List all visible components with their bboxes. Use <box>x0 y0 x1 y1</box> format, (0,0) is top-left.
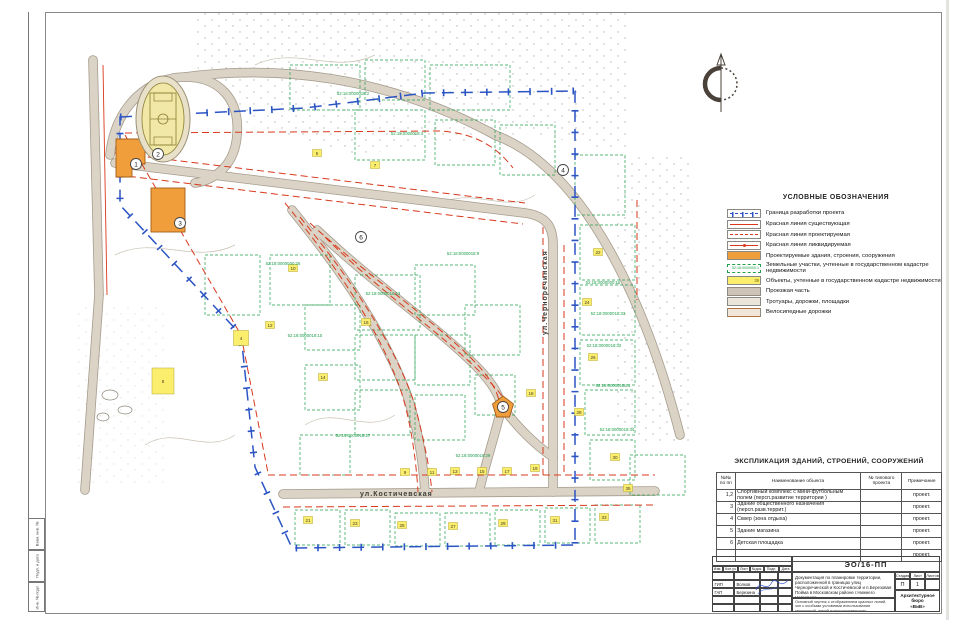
signer-row <box>712 572 792 580</box>
cadastre-object-number: 21 <box>305 518 311 523</box>
col-number: №№ по пп <box>717 473 736 490</box>
legend-item-label: Красная линия проектируемая <box>766 232 850 238</box>
site-plan-map: 9111315171921232527293133222426283035571… <box>55 5 690 613</box>
signer-name <box>734 604 760 612</box>
symbol-sample-text: 52:18:0000000:1 <box>732 266 759 270</box>
cadastre-object-number: 15 <box>479 469 485 474</box>
explication-table: №№ по пп Наименование объекта № типового… <box>716 472 942 562</box>
cadastral-parcel <box>415 395 465 440</box>
redline-removed-symbol <box>727 241 761 250</box>
cadastral-number-label: 52:18:0000018:29 <box>456 453 491 458</box>
col-name: Наименование объекта <box>735 473 861 490</box>
cadastre-object-marker: 17 <box>503 468 512 475</box>
cadastre-object-marker: 23 <box>351 520 360 527</box>
signer-name: Березина <box>734 588 760 596</box>
table-cell: 3 <box>717 502 736 514</box>
bikeway-symbol <box>727 308 761 317</box>
cadastral-parcel <box>545 508 590 543</box>
legend-title: УСЛОВНЫЕ ОБОЗНАЧЕНИЯ <box>727 194 945 201</box>
company-line2: «ВиВ» <box>910 604 925 609</box>
cadastre-object-number: 8 <box>162 379 165 384</box>
signer-row: ГИПВолков <box>712 580 792 588</box>
cadastre-object-number: 13 <box>452 469 458 474</box>
cadastre-object-marker: 15 <box>478 468 487 475</box>
cadastre-object-number: 27 <box>450 524 456 529</box>
table-cell: 1,2 <box>717 490 736 502</box>
stage-header-cell: Лист <box>910 572 925 579</box>
stage-headers: СтадияЛистЛистов <box>895 572 940 579</box>
cadastral-number-label: 52:18:0000018:4 <box>391 131 424 136</box>
revision-blank-row <box>712 556 792 566</box>
sidewalk-symbol <box>727 297 761 306</box>
signer-signature-cell <box>760 588 778 596</box>
cadastre-object-number: 12 <box>267 323 273 328</box>
cadastral-parcel <box>595 505 640 543</box>
cadastre-object-marker: 35 <box>624 485 633 492</box>
table-row: 5Здание магазинапроект. <box>717 526 942 538</box>
table-cell <box>861 490 902 502</box>
signer-name <box>734 596 760 604</box>
cadastre-object-number: 14 <box>320 375 326 380</box>
table-cell <box>861 502 902 514</box>
cadastre-object-number: 4 <box>240 336 243 341</box>
legend-item: Проезжая часть <box>727 287 945 296</box>
cadastral-parcel <box>295 510 340 545</box>
frame-strip-label: Инв. № подл. <box>34 585 39 610</box>
cadastral-number-label: 52:18:0000018:21 <box>596 383 631 388</box>
table-cell <box>861 538 902 550</box>
legend-item: 39Объекты, учтенные в государственном ка… <box>727 276 945 285</box>
signer-name: Волков <box>734 580 760 588</box>
legend-item: Граница разработки проекта <box>727 209 945 218</box>
table-cell: проект. <box>902 526 942 538</box>
object-number-marker: 2 <box>153 149 164 160</box>
company-name: Архитектурное бюро «ВиВ» <box>895 590 940 612</box>
cadastre-object-number: 33 <box>601 515 607 520</box>
cadastre-object-marker: 18 <box>527 390 536 397</box>
table-cell: проект. <box>902 538 942 550</box>
frame-strip-box: Инв. № подл. <box>28 582 45 612</box>
cadastre-object-marker: 14 <box>319 374 328 381</box>
cadastre-objects-layer: 9111315171921232527293133222426283035571… <box>152 150 633 530</box>
cadastre-object-number: 9 <box>404 470 407 475</box>
cadastre-object-number: 7 <box>374 163 377 168</box>
sport-complex-building <box>116 139 145 177</box>
cadastre-object-number: 16 <box>363 320 369 325</box>
object-number: 2 <box>156 151 160 158</box>
page-edge-shadow <box>946 0 949 620</box>
mini-football-field <box>136 76 190 162</box>
object-number: 1 <box>134 161 138 168</box>
cadastral-number-label: 52:18:0000018:2 <box>337 91 370 96</box>
cadastre-object-marker: 21 <box>304 517 313 524</box>
table-row: 6Детская площадкапроект. <box>717 538 942 550</box>
signer-date-cell <box>778 604 792 612</box>
project-description: Документация по планировке территории, р… <box>792 572 895 598</box>
cadastre-object-number: 5 <box>316 151 319 156</box>
cadastre-object-marker: 12 <box>266 322 275 329</box>
stage-value-cell <box>925 579 940 590</box>
table-cell: Спортивный комплекс с мини-футбольным по… <box>735 490 861 502</box>
col-type-project: № типового проекта <box>861 473 902 490</box>
cadastre-object-number: 19 <box>532 466 538 471</box>
signer-role: ГИП <box>712 580 734 588</box>
drawing-sheet: Взам. инв. №Подп. и датаИнв. № подл. <box>0 0 957 620</box>
title-block: Изм.Кол.учЛист№док.Подп.Дата ГИПВолковГА… <box>712 556 940 612</box>
signer-date-cell <box>778 572 792 580</box>
legend-item: Красная линия существующая <box>727 220 945 229</box>
cadastre-object-marker: 22 <box>594 249 603 256</box>
table-row: 1,2Спортивный комплекс с мини-футбольным… <box>717 490 942 502</box>
cadastral-number-label: 52:18:0000000:16 <box>586 280 621 285</box>
cadastral-parcel <box>415 335 470 385</box>
legend-item-label: Земельные участки, учтенные в государств… <box>766 262 945 275</box>
cadastre-object-marker: 27 <box>449 523 458 530</box>
cadastre-object-marker: 5 <box>313 150 322 157</box>
roadway-symbol <box>727 287 761 296</box>
cadastral-parcel <box>415 265 475 315</box>
legend-item-label: Проектируемые здания, строения, сооружен… <box>766 253 895 259</box>
frame-strip-box: Подп. и дата <box>28 550 45 582</box>
signer-signature-cell <box>760 572 778 580</box>
object-number-marker: 4 <box>558 165 569 176</box>
stage-value-cell: П <box>895 579 910 590</box>
cadastral-numbers-layer: 52:18:0000000:1652:18:0000018:3352:18:00… <box>266 91 635 458</box>
cadastre-object-number: 18 <box>528 391 534 396</box>
signer-name <box>734 572 760 580</box>
table-cell: Здание общественного назначения (персп.р… <box>735 502 861 514</box>
frame-strip-box: Взам. инв. № <box>28 518 45 550</box>
cadastral-parcel <box>305 305 360 350</box>
cadastral-number-label: 52:18:0000018:9 <box>447 251 480 256</box>
legend-item: Проектируемые здания, строения, сооружен… <box>727 251 945 260</box>
signer-row <box>712 596 792 604</box>
table-cell: проект. <box>902 514 942 526</box>
signer-signature-cell <box>760 604 778 612</box>
cadastre-object-number: 29 <box>500 521 506 526</box>
symbol-sample-text: 39 <box>754 278 759 283</box>
cadastre-object-marker: 9 <box>401 469 410 476</box>
cadastral-number-label: 52:18:0000018:33 <box>591 311 626 316</box>
cadastre-object-number: 22 <box>595 250 601 255</box>
project-code: ЭО/16-ПП <box>792 556 940 572</box>
cadastral-parcel <box>345 510 390 545</box>
cadastre-object-marker: 7 <box>371 162 380 169</box>
table-cell: 5 <box>717 526 736 538</box>
legend-item-label: Красная линия существующая <box>766 221 850 227</box>
table-cell <box>861 526 902 538</box>
legend-item-label: Тротуары, дорожки, площадки <box>766 299 849 305</box>
stage-header-cell: Стадия <box>895 572 910 579</box>
table-cell: 6 <box>717 538 736 550</box>
table-cell: проект. <box>902 502 942 514</box>
object-number: 6 <box>359 234 363 241</box>
cadastre-object-marker: 11 <box>428 469 437 476</box>
cadastre-object-number: 26 <box>590 355 596 360</box>
cadastre-object-number: 35 <box>625 486 631 491</box>
cadastre-object-number: 25 <box>399 523 405 528</box>
cadastral-parcel <box>465 305 520 355</box>
cadastre-object-marker: 24 <box>583 299 592 306</box>
company-line1: Архитектурное бюро <box>896 593 939 604</box>
cadastral-number-label: 52:18:0000018:17 <box>336 433 371 438</box>
cadastral-number-label: 52:18:0000018:15 <box>288 333 323 338</box>
cadastral-number-label: 52:18:0000018:13 <box>366 291 401 296</box>
frame-strip-label: Взам. инв. № <box>34 522 39 547</box>
object-number-marker: 6 <box>356 232 367 243</box>
stage-header-cell: Листов <box>925 572 940 579</box>
redline-planned-symbol <box>727 230 761 239</box>
cadastral-number-label: 52:18:0000000:26 <box>266 261 301 266</box>
cadastral-parcel <box>300 435 350 475</box>
stage-values: П1 <box>895 579 940 590</box>
signer-signature-cell <box>760 596 778 604</box>
cadastral-parcel <box>305 365 360 410</box>
col-note: Примечание <box>902 473 942 490</box>
legend-item: Тротуары, дорожки, площадки <box>727 297 945 306</box>
cadastre-object-number: 11 <box>430 470 435 475</box>
cadastre-object-marker: 28 <box>575 409 584 416</box>
building-planned-symbol <box>727 251 761 260</box>
signer-role <box>712 572 734 580</box>
legend-item-label: Граница разработки проекта <box>766 210 844 216</box>
table-cell: 4 <box>717 514 736 526</box>
cadastre-object-number: 17 <box>504 469 510 474</box>
cadastre-object-number: 28 <box>576 410 582 415</box>
cadastre-object-number: 24 <box>584 300 590 305</box>
legend-item: Красная линия проектируемая <box>727 230 945 239</box>
signer-role <box>712 604 734 612</box>
cadastre-object-marker: 26 <box>589 354 598 361</box>
legend-item-label: Красная линия ликвидируемая <box>766 242 851 248</box>
signer-date-cell <box>778 588 792 596</box>
legend: УСЛОВНЫЕ ОБОЗНАЧЕНИЯ Граница разработки … <box>727 194 945 319</box>
table-cell: Здание магазина <box>735 526 861 538</box>
cadastre-object-marker: 4 <box>234 331 249 346</box>
boundary-symbol <box>727 209 761 218</box>
table-cell: проект. <box>902 490 942 502</box>
redline-existing-symbol <box>727 220 761 229</box>
signer-date-cell <box>778 596 792 604</box>
legend-item-label: Велосипедные дорожки <box>766 309 831 315</box>
explication-block: ЭКСПЛИКАЦИЯ ЗДАНИЙ, СТРОЕНИЙ, СООРУЖЕНИЙ… <box>716 458 942 562</box>
legend-item: Красная линия ликвидируемая <box>727 241 945 250</box>
object-cadastre-symbol: 39 <box>727 276 761 285</box>
explication-title: ЭКСПЛИКАЦИЯ ЗДАНИЙ, СТРОЕНИЙ, СООРУЖЕНИЙ <box>716 458 942 465</box>
street-name-label: ул.Черноречинская <box>542 250 549 335</box>
legend-item: 52:18:0000000:1Земельные участки, учтенн… <box>727 262 945 275</box>
cadastre-object-marker: 29 <box>499 520 508 527</box>
cadastral-number-label: 52:18:0000018:44 <box>600 427 635 432</box>
frame-strip-label: Подп. и дата <box>34 554 39 578</box>
street-name-label: ул.Костичевская <box>360 491 433 498</box>
signer-row: ГАПБерезина <box>712 588 792 596</box>
cadastral-parcel <box>395 513 440 546</box>
object-number-marker: 1 <box>131 159 142 170</box>
cadastre-object-marker: 30 <box>611 454 620 461</box>
table-cell <box>861 514 902 526</box>
object-number: 4 <box>561 167 565 174</box>
north-arrow-icon <box>698 52 744 116</box>
cadastre-object-marker: 13 <box>451 468 460 475</box>
cadastre-object-marker: 8 <box>152 368 174 394</box>
stage-value-cell: 1 <box>910 579 925 590</box>
cadastre-object-marker: 25 <box>398 522 407 529</box>
object-number: 5 <box>501 404 505 411</box>
legend-item-label: Объекты, учтенные в государственном када… <box>766 278 941 284</box>
signer-rows: ГИПВолковГАПБерезина <box>712 572 792 612</box>
signer-role: ГАП <box>712 588 734 596</box>
cadastre-object-number: 23 <box>352 521 358 526</box>
object-number: 3 <box>178 220 182 227</box>
table-cell: Сквер (зона отдыха) <box>735 514 861 526</box>
cadastre-object-number: 10 <box>290 266 296 271</box>
signer-signature-cell <box>760 580 778 588</box>
object-number-marker: 3 <box>175 218 186 229</box>
cadastral-number-label: 52:18:0000018:32 <box>587 343 622 348</box>
object-number-marker: 5 <box>498 402 509 413</box>
cadastre-object-number: 30 <box>612 455 618 460</box>
cadastre-object-number: 31 <box>552 518 558 523</box>
legend-items: Граница разработки проектаКрасная линия … <box>727 209 945 317</box>
project-boundary <box>120 91 575 548</box>
signer-role <box>712 596 734 604</box>
cadastre-object-marker: 19 <box>531 465 540 472</box>
cadastre-object-marker: 31 <box>551 517 560 524</box>
cadastral-parcel <box>495 510 540 545</box>
signer-row <box>712 604 792 612</box>
table-row: 3Здание общественного назначения (персп.… <box>717 502 942 514</box>
table-row: 4Сквер (зона отдыха)проект. <box>717 514 942 526</box>
legend-item: Велосипедные дорожки <box>727 308 945 317</box>
cadastral-parcel <box>355 390 410 435</box>
cadastre-object-marker: 16 <box>362 319 371 326</box>
sheet-title: Основной чертеж с отображением красных л… <box>792 598 895 612</box>
legend-item-label: Проезжая часть <box>766 288 810 294</box>
table-cell: Детская площадка <box>735 538 861 550</box>
cadastre-object-marker: 33 <box>600 514 609 521</box>
signer-date-cell <box>778 580 792 588</box>
parcel-cadastre-symbol: 52:18:0000000:1 <box>727 264 761 273</box>
